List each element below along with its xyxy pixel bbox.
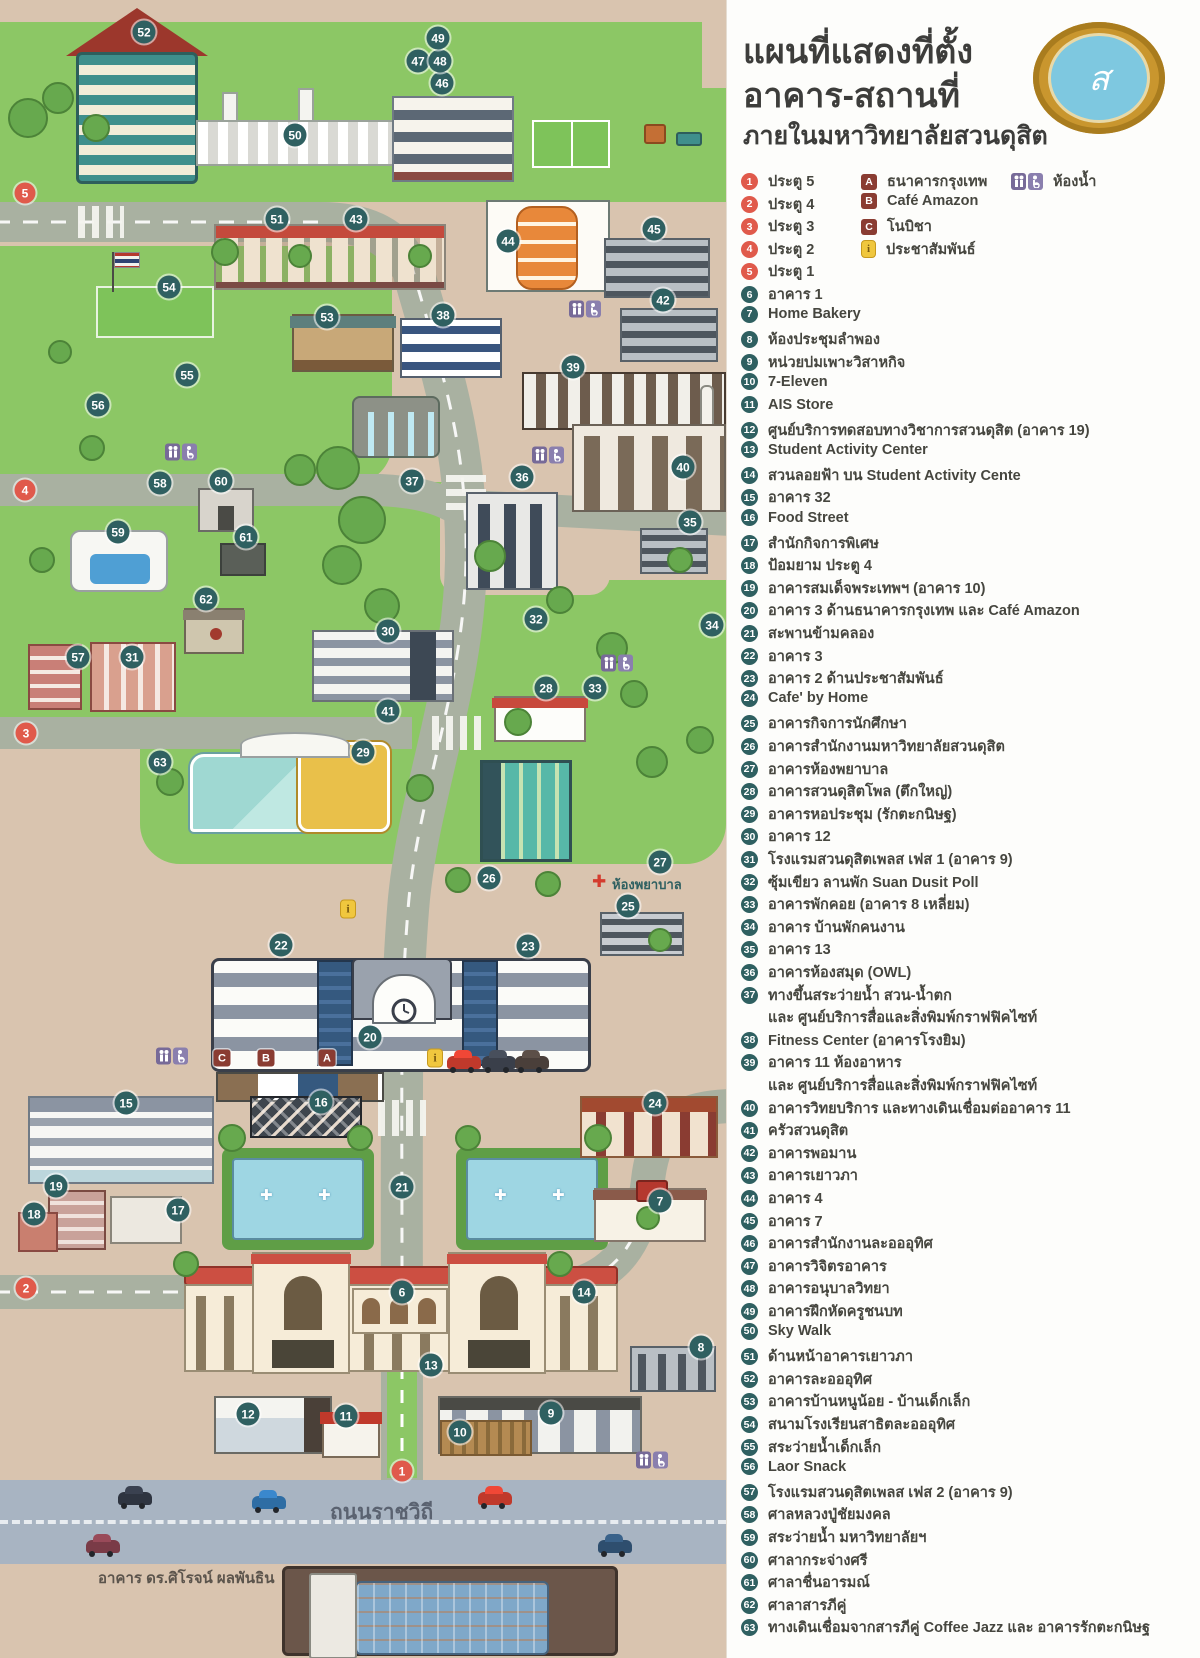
- tree: [584, 1124, 612, 1152]
- restroom-icon: [569, 301, 601, 318]
- tree: [284, 454, 316, 486]
- info-icon: i: [340, 900, 356, 919]
- item-number-badge: 12: [741, 422, 758, 439]
- item-label: ครัวสวนดุสิต: [768, 1119, 848, 1142]
- legend-item: 51ด้านหน้าอาคารเยาวภา: [741, 1345, 913, 1368]
- waterfall-garden: [352, 396, 440, 458]
- item-number-badge: 63: [741, 1619, 758, 1636]
- legend-item: 43อาคารเยาวภา: [741, 1164, 858, 1187]
- building-26-office-tower: [480, 760, 572, 862]
- tree: [211, 238, 239, 266]
- map-marker-61: 61: [235, 526, 258, 549]
- legend-item: 48อาคารอนุบาลวิทยา: [741, 1277, 890, 1300]
- legend-item: 63ทางเดินเชื่อมจากสารภีคู่ Coffee Jazz แ…: [741, 1616, 1150, 1639]
- item-number-badge: 60: [741, 1552, 758, 1569]
- item-number-badge: 41: [741, 1122, 758, 1139]
- gate-label: ประตู 3: [768, 215, 814, 238]
- map-marker-34: 34: [701, 614, 724, 637]
- map-marker-63: 63: [149, 751, 172, 774]
- nurse-room-label: ห้องพยาบาล: [612, 874, 682, 895]
- legend-item: 45อาคาร 7: [741, 1210, 823, 1233]
- item-label: อาคาร 32: [768, 486, 831, 509]
- special-label: ห้องน้ำ: [1053, 170, 1096, 193]
- special-label: Café Amazon: [887, 193, 978, 209]
- car: [598, 1540, 632, 1553]
- gate-label: ประตู 4: [768, 193, 814, 216]
- item-number-badge: 13: [741, 441, 758, 458]
- item-number-badge: 35: [741, 941, 758, 958]
- item-label: Fitness Center (อาคารโรงยิม): [768, 1029, 966, 1052]
- red-cross-icon: ✚: [592, 872, 606, 892]
- item-number-badge: 59: [741, 1529, 758, 1546]
- university-logo: ส: [1033, 22, 1165, 134]
- tree: [445, 867, 471, 893]
- item-label: อาคารสำนักงานมหาวิทยาลัยสวนดุสิต: [768, 735, 1005, 758]
- legend-gate-item: 3ประตู 3: [741, 215, 814, 238]
- item-label: อาคารฝึกหัดครูชนบท: [768, 1300, 903, 1323]
- map-marker-56: 56: [87, 394, 110, 417]
- legend-item: 38Fitness Center (อาคารโรงยิม): [741, 1029, 966, 1052]
- item-label: Home Bakery: [768, 306, 861, 322]
- legend-gate-item: 5ประตู 1: [741, 260, 814, 283]
- car: [86, 1540, 120, 1553]
- item-number-badge: 39: [741, 1054, 758, 1071]
- item-number-badge: 33: [741, 896, 758, 913]
- legend-item: 37ทางขึ้นสระว่ายน้ำ สวน-น้ำตก: [741, 984, 952, 1007]
- item-number-badge: 58: [741, 1506, 758, 1523]
- gate-number-badge: 2: [741, 196, 758, 213]
- item-label: อาคาร 11 ห้องอาหาร: [768, 1051, 902, 1074]
- building-53-ban-nu-noi: [292, 314, 394, 372]
- item-number-badge: 16: [741, 509, 758, 526]
- map-marker-31: 31: [121, 646, 144, 669]
- tree: [406, 774, 434, 802]
- legend-special-item: iประชาสัมพันธ์: [861, 238, 976, 261]
- legend-special-item: Aธนาคารกรุงเทพ: [861, 170, 987, 193]
- map-marker-44: 44: [497, 230, 520, 253]
- map-marker-24: 24: [644, 1092, 667, 1115]
- tree: [474, 540, 506, 572]
- tree: [364, 588, 400, 624]
- map-marker-55: 55: [176, 364, 199, 387]
- item-label: สำนักกิจการพิเศษ: [768, 532, 879, 555]
- restroom-icon: [636, 1452, 668, 1469]
- item-label: ป้อมยาม ประตู 4: [768, 554, 872, 577]
- restroom-icon: [532, 447, 564, 464]
- item-number-badge: 11: [741, 396, 758, 413]
- legend-item: 55สระว่ายน้ำเด็กเล็ก: [741, 1436, 881, 1459]
- map-gate-marker-5: 5: [15, 183, 36, 204]
- item-label: ทางเดินเชื่อมจากสารภีคู่ Coffee Jazz และ…: [768, 1616, 1150, 1639]
- legend-item: 49อาคารฝึกหัดครูชนบท: [741, 1300, 903, 1323]
- item-label: อาคารบ้านหนูน้อย - บ้านเด็กเล็ก: [768, 1390, 970, 1413]
- legend-item: 62ศาลาสารภีคู่: [741, 1594, 846, 1617]
- legend-item: 31โรงแรมสวนดุสิตเพลส เฟส 1 (อาคาร 9): [741, 848, 1013, 871]
- gate-number-badge: 4: [741, 241, 758, 258]
- item-label: Laor Snack: [768, 1459, 846, 1475]
- item-number-badge: 22: [741, 648, 758, 665]
- item-number-badge: 37: [741, 987, 758, 1004]
- item-label: อาคาร 3 ด้านธนาคารกรุงเทพ และ Café Amazo…: [768, 599, 1080, 622]
- legend-item: 42อาคารพอมาน: [741, 1142, 856, 1165]
- legend-item: 40อาคารวิทยบริการ และทางเดินเชื่อมต่ออาค…: [741, 1097, 1071, 1120]
- crosswalk: [378, 1100, 426, 1136]
- item-number-badge: 62: [741, 1597, 758, 1614]
- item-number-badge: 47: [741, 1258, 758, 1275]
- tree: [504, 708, 532, 736]
- item-label: ศาลาสารภีคู่: [768, 1594, 846, 1617]
- item-number-badge: 61: [741, 1574, 758, 1591]
- item-label: ศาลาชื่นอารมณ์: [768, 1571, 870, 1594]
- item-label: อาคาร 4: [768, 1187, 823, 1210]
- building-sirote-base: [282, 1566, 618, 1656]
- tree: [667, 547, 693, 573]
- item-label: อาคารละอออุทิศ: [768, 1368, 872, 1391]
- legend-item: 9หน่วยบ่มเพาะวิสาหกิจ: [741, 351, 905, 374]
- tree: [648, 928, 672, 952]
- pond-left: ✚ ✚: [222, 1148, 374, 1250]
- item-label-cont: และ ศูนย์บริการสื่อและสิ่งพิมพ์กราฟฟิคไซ…: [768, 1074, 1037, 1097]
- item-label: สวนลอยฟ้า บน Student Activity Cente: [768, 464, 1021, 487]
- map-marker-38: 38: [432, 304, 455, 327]
- map-marker-62: 62: [195, 588, 218, 611]
- letter-badge-A: A: [861, 174, 877, 190]
- item-label: อาคารกิจการนักศึกษา: [768, 712, 907, 735]
- legend-item: 12ศูนย์บริการทดสอบทางวิชาการสวนดุสิต (อา…: [741, 419, 1090, 442]
- legend-item: 61ศาลาชื่นอารมณ์: [741, 1571, 870, 1594]
- map-marker-28: 28: [535, 677, 558, 700]
- car: [118, 1492, 152, 1505]
- item-number-badge: 56: [741, 1458, 758, 1475]
- map-marker-39: 39: [562, 356, 585, 379]
- letter-badge-B: B: [861, 193, 877, 209]
- map-marker-53: 53: [316, 306, 339, 329]
- item-number-badge: 43: [741, 1167, 758, 1184]
- tree: [455, 1125, 481, 1151]
- map-marker-21: 21: [391, 1176, 414, 1199]
- item-number-badge: 15: [741, 489, 758, 506]
- tree: [29, 547, 55, 573]
- map-marker-35: 35: [679, 511, 702, 534]
- tree: [636, 746, 668, 778]
- map-marker-6: 6: [391, 1281, 414, 1304]
- item-label: AIS Store: [768, 397, 833, 413]
- item-number-badge: 9: [741, 354, 758, 371]
- legend-item: 35อาคาร 13: [741, 938, 831, 961]
- map-gate-marker-3: 3: [16, 723, 37, 744]
- item-number-badge: 42: [741, 1145, 758, 1162]
- legend-item: 44อาคาร 4: [741, 1187, 823, 1210]
- item-number-badge: 23: [741, 670, 758, 687]
- legend-item: 46อาคารสำนักงานละอออุทิศ: [741, 1232, 933, 1255]
- legend-item: 18ป้อมยาม ประตู 4: [741, 554, 872, 577]
- map-marker-11: 11: [335, 1405, 358, 1428]
- legend-item: 14สวนลอยฟ้า บน Student Activity Cente: [741, 464, 1021, 487]
- legend-item: 57โรงแรมสวนดุสิตเพลส เฟส 2 (อาคาร 9): [741, 1481, 1013, 1504]
- legend-item: 11AIS Store: [741, 396, 833, 413]
- item-number-badge: 48: [741, 1280, 758, 1297]
- legend-item: 17สำนักกิจการพิเศษ: [741, 532, 879, 555]
- item-label: อาคาร 3: [768, 645, 823, 668]
- pond-right: ✚ ✚: [456, 1148, 608, 1250]
- item-number-badge: 44: [741, 1190, 758, 1207]
- legend-panel: แผนที่แสดงที่ตั้ง อาคาร-สถานที่ ภายในมหา…: [726, 0, 1200, 1658]
- legend-item: 6อาคาร 1: [741, 283, 823, 306]
- legend-item: 26อาคารสำนักงานมหาวิทยาลัยสวนดุสิต: [741, 735, 1005, 758]
- car: [447, 1056, 481, 1069]
- item-number-badge: 51: [741, 1348, 758, 1365]
- item-number-badge: 34: [741, 919, 758, 936]
- field-54-laor-school-field: [96, 286, 214, 338]
- restroom-icon: [601, 655, 633, 672]
- map-marker-33: 33: [584, 677, 607, 700]
- item-number-badge: 40: [741, 1100, 758, 1117]
- legend-item: 28อาคารสวนดุสิตโพล (ตึกใหญ่): [741, 780, 952, 803]
- item-label: Food Street: [768, 510, 849, 526]
- item-label: อาคาร 12: [768, 825, 831, 848]
- item-number-badge: 24: [741, 690, 758, 707]
- building-38-fitness-center: [400, 318, 502, 378]
- item-number-badge: 54: [741, 1416, 758, 1433]
- legend-item: 16Food Street: [741, 509, 849, 526]
- item-label: อาคารห้องพยาบาล: [768, 758, 888, 781]
- tree: [535, 871, 561, 897]
- item-label: อาคาร 13: [768, 938, 831, 961]
- map-marker-7: 7: [649, 1190, 672, 1213]
- map-marker-60: 60: [210, 470, 233, 493]
- building-25-student-affairs: [600, 912, 684, 956]
- car: [482, 1056, 516, 1069]
- map-marker-13: 13: [420, 1354, 443, 1377]
- item-label: อาคารวิจิตรอาคาร: [768, 1255, 887, 1278]
- legend-special-item: BCafé Amazon: [861, 193, 978, 209]
- item-number-badge: 19: [741, 580, 758, 597]
- tree: [42, 82, 74, 114]
- campus-map-poster: ถนนราชวิถี ✚ ✚ ✚ ✚: [0, 0, 1200, 1658]
- tree: [173, 1251, 199, 1277]
- legend-gate-item: 4ประตู 2: [741, 238, 814, 261]
- item-label: อาคารพอมาน: [768, 1142, 856, 1165]
- map-marker-45: 45: [643, 218, 666, 241]
- building-12-testing-center: [214, 1396, 332, 1454]
- tree: [408, 244, 432, 268]
- item-label: Sky Walk: [768, 1323, 831, 1339]
- item-number-badge: 49: [741, 1303, 758, 1320]
- legend-item: 7Home Bakery: [741, 306, 861, 323]
- legend-item: 56Laor Snack: [741, 1458, 846, 1475]
- playground-slide: [676, 132, 702, 146]
- map-marker-47: 47: [407, 50, 430, 73]
- map-gate-marker-1: 1: [392, 1461, 413, 1482]
- tree: [347, 1125, 373, 1151]
- item-label: อาคารสมเด็จพระเทพฯ (อาคาร 10): [768, 577, 985, 600]
- map-marker-36: 36: [511, 466, 534, 489]
- playground: [644, 124, 666, 144]
- item-label: สระว่ายน้ำ มหาวิทยาลัยฯ: [768, 1526, 926, 1549]
- item-label: ศูนย์บริการทดสอบทางวิชาการสวนดุสิต (อาคา…: [768, 419, 1090, 442]
- tree: [316, 446, 360, 490]
- legend-item: 36อาคารห้องสมุด (OWL): [741, 961, 911, 984]
- item-number-badge: 21: [741, 625, 758, 642]
- item-label: อาคารเยาวภา: [768, 1164, 858, 1187]
- building-42: [620, 308, 718, 362]
- gate-label: ประตู 1: [768, 260, 814, 283]
- map-letter-marker-B: B: [258, 1050, 275, 1067]
- item-number-badge: 27: [741, 761, 758, 778]
- item-label: สนามโรงเรียนสาธิตละอออุทิศ: [768, 1413, 955, 1436]
- item-label: โรงแรมสวนดุสิตเพลส เฟส 2 (อาคาร 9): [768, 1481, 1013, 1504]
- item-number-badge: 57: [741, 1484, 758, 1501]
- map-marker-15: 15: [115, 1092, 138, 1115]
- tree: [546, 586, 574, 614]
- restroom-icon: [165, 444, 197, 461]
- legend-item: 60ศาลากระจ่างศรี: [741, 1549, 867, 1572]
- map-marker-42: 42: [652, 289, 675, 312]
- map-marker-10: 10: [449, 1421, 472, 1444]
- item-label: ทางขึ้นสระว่ายน้ำ สวน-น้ำตก: [768, 984, 952, 1007]
- item-label: อาคารสวนดุสิตโพล (ตึกใหญ่): [768, 780, 952, 803]
- gate-number-badge: 5: [741, 263, 758, 280]
- building-6-pavilion-left: [252, 1252, 350, 1374]
- item-label: อาคารสำนักงานละอออุทิศ: [768, 1232, 933, 1255]
- building-46-49-laor-school: [392, 96, 514, 182]
- crosswalk: [432, 716, 482, 750]
- map-marker-59: 59: [107, 521, 130, 544]
- item-label: Student Activity Center: [768, 442, 928, 458]
- item-number-badge: 52: [741, 1371, 758, 1388]
- map-marker-29: 29: [352, 741, 375, 764]
- tree: [686, 726, 714, 754]
- map-marker-41: 41: [377, 700, 400, 723]
- item-label: สะพานข้ามคลอง: [768, 622, 874, 645]
- legend-item: 19อาคารสมเด็จพระเทพฯ (อาคาร 10): [741, 577, 985, 600]
- map-marker-12: 12: [237, 1403, 260, 1426]
- legend-item: 32ซุ้มเขียว ลานพัก Suan Dusit Poll: [741, 871, 979, 894]
- item-label: หน่วยบ่มเพาะวิสาหกิจ: [768, 351, 905, 374]
- item-number-badge: 46: [741, 1235, 758, 1252]
- building-29-auditorium-glass: [190, 754, 310, 832]
- tree: [8, 98, 48, 138]
- item-number-badge: 6: [741, 286, 758, 303]
- building-29-auditorium-spire: [240, 732, 350, 758]
- map-marker-49: 49: [427, 27, 450, 50]
- item-number-badge: 8: [741, 331, 758, 348]
- special-label: โนบิชา: [887, 215, 932, 238]
- legend-item: 107-Eleven: [741, 373, 828, 390]
- legend-item: 53อาคารบ้านหนูน้อย - บ้านเด็กเล็ก: [741, 1390, 970, 1413]
- gate-number-badge: 1: [741, 173, 758, 190]
- tree: [48, 340, 72, 364]
- map-marker-52: 52: [133, 21, 156, 44]
- legend-item: 13Student Activity Center: [741, 441, 928, 458]
- item-label: 7-Eleven: [768, 374, 828, 390]
- poster-title-line2: อาคาร-สถานที่: [743, 68, 960, 122]
- map-marker-46: 46: [431, 72, 454, 95]
- restroom-icon: [1011, 173, 1043, 190]
- tree: [322, 545, 362, 585]
- legend-item: 25อาคารกิจการนักศึกษา: [741, 712, 907, 735]
- road-name-label: ถนนราชวิถี: [330, 1496, 433, 1529]
- item-number-badge: 10: [741, 373, 758, 390]
- map-marker-26: 26: [478, 867, 501, 890]
- building-62-saraphi-khu-pavilion: [184, 608, 244, 654]
- item-label: อาคาร 2 ด้านประชาสัมพันธ์: [768, 667, 944, 690]
- map-marker-27: 27: [649, 851, 672, 874]
- crosswalk: [78, 206, 124, 238]
- special-label: ประชาสัมพันธ์: [886, 238, 976, 261]
- football-field-top: [532, 120, 610, 168]
- tree: [218, 1124, 246, 1152]
- legend-item: 24Cafe' by Home: [741, 690, 868, 707]
- tree: [82, 114, 110, 142]
- map-marker-8: 8: [690, 1336, 713, 1359]
- item-number-badge: 29: [741, 806, 758, 823]
- building-39: [522, 372, 726, 430]
- legend-item: 34อาคาร บ้านพักคนงาน: [741, 916, 905, 939]
- item-label: ด้านหน้าอาคารเยาวภา: [768, 1345, 913, 1368]
- map-marker-50: 50: [284, 124, 307, 147]
- info-icon: i: [427, 1049, 443, 1068]
- building-6-pavilion-right: [448, 1252, 546, 1374]
- map-gate-marker-4: 4: [15, 480, 36, 501]
- item-number-badge: 25: [741, 715, 758, 732]
- legend-gate-item: 1ประตู 5: [741, 170, 814, 193]
- poster-title-line3: ภายในมหาวิทยาลัยสวนดุสิต: [743, 116, 1048, 156]
- legend-special-item: ห้องน้ำ: [1011, 170, 1096, 193]
- item-label: อาคารห้องสมุด (OWL): [768, 961, 911, 984]
- legend-special-item: Cโนบิชา: [861, 215, 932, 238]
- legend-item: 50Sky Walk: [741, 1323, 831, 1340]
- tree: [288, 244, 312, 268]
- map-marker-18: 18: [23, 1203, 46, 1226]
- map-marker-51: 51: [266, 208, 289, 231]
- map-marker-40: 40: [672, 456, 695, 479]
- item-label: อาคาร 7: [768, 1210, 823, 1233]
- legend-item: 52อาคารละอออุทิศ: [741, 1368, 872, 1391]
- map-marker-57: 57: [67, 646, 90, 669]
- restroom-icon: [156, 1048, 188, 1065]
- map-gate-marker-2: 2: [16, 1278, 37, 1299]
- item-label: ซุ้มเขียว ลานพัก Suan Dusit Poll: [768, 871, 979, 894]
- legend-item: 29อาคารหอประชุม (รักตะกนิษฐ): [741, 803, 957, 826]
- item-label: อาคารพักคอย (อาคาร 8 เหลี่ยม): [768, 893, 969, 916]
- map-marker-58: 58: [149, 472, 172, 495]
- item-number-badge: 28: [741, 783, 758, 800]
- legend-item: 20อาคาร 3 ด้านธนาคารกรุงเทพ และ Café Ama…: [741, 599, 1080, 622]
- car: [515, 1056, 549, 1069]
- item-number-badge: 45: [741, 1213, 758, 1230]
- item-number-badge: 50: [741, 1323, 758, 1340]
- map-marker-54: 54: [158, 276, 181, 299]
- legend-item: 33อาคารพักคอย (อาคาร 8 เหลี่ยม): [741, 893, 969, 916]
- legend-item: 15อาคาร 32: [741, 486, 831, 509]
- map-marker-22: 22: [270, 934, 293, 957]
- tree: [338, 496, 386, 544]
- legend-item: 8ห้องประชุมลำพอง: [741, 328, 880, 351]
- car: [252, 1496, 286, 1509]
- item-label: ศาลหลวงปู่ชัยมงคล: [768, 1503, 891, 1526]
- item-number-badge: 36: [741, 964, 758, 981]
- building-40: [572, 424, 726, 512]
- map-marker-16: 16: [310, 1091, 333, 1114]
- legend-item: 47อาคารวิจิตรอาคาร: [741, 1255, 887, 1278]
- sirote-building-label: อาคาร ดร.ศิโรจน์ ผลพันธิน: [98, 1566, 274, 1590]
- info-icon: i: [861, 240, 876, 258]
- item-label: อาคารอนุบาลวิทยา: [768, 1277, 890, 1300]
- item-label: ศาลากระจ่างศรี: [768, 1549, 867, 1572]
- item-label: อาคารวิทยบริการ และทางเดินเชื่อมต่ออาคาร…: [768, 1097, 1071, 1120]
- item-number-badge: 20: [741, 602, 758, 619]
